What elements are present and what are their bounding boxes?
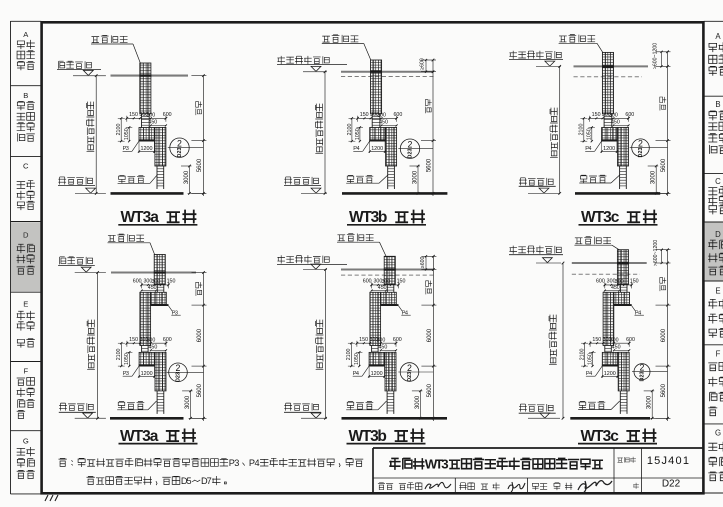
svg-text:5600: 5600: [197, 383, 203, 397]
svg-text:B: B: [715, 100, 720, 109]
svg-text:450: 450: [612, 344, 621, 350]
svg-text:150: 150: [167, 279, 176, 285]
svg-text:300: 300: [146, 113, 155, 119]
svg-text:2100: 2100: [116, 124, 122, 136]
svg-text:D22: D22: [662, 479, 681, 490]
svg-text:450: 450: [148, 119, 157, 125]
svg-text:600: 600: [133, 279, 142, 285]
svg-text:600: 600: [626, 337, 635, 343]
svg-text:E: E: [23, 299, 28, 308]
svg-text:D23: D23: [640, 372, 646, 382]
svg-text:F: F: [23, 367, 28, 376]
svg-text:1200: 1200: [141, 146, 153, 152]
svg-text:6000: 6000: [197, 328, 203, 342]
svg-text:E: E: [715, 286, 720, 295]
svg-text:D: D: [23, 230, 29, 239]
svg-text:B: B: [23, 91, 28, 100]
svg-text:150: 150: [592, 112, 601, 118]
svg-text:2: 2: [176, 363, 181, 373]
svg-text:D23: D23: [638, 148, 644, 158]
svg-text:P3: P3: [229, 458, 240, 468]
svg-text:450: 450: [611, 285, 620, 291]
svg-text:WT3b: WT3b: [349, 428, 387, 445]
svg-text:600: 600: [596, 279, 605, 285]
svg-text:450: 450: [378, 344, 387, 350]
svg-text:450: 450: [378, 285, 387, 291]
svg-text:2: 2: [638, 139, 643, 149]
svg-text:5600: 5600: [427, 158, 433, 172]
svg-text:6000: 6000: [427, 328, 433, 342]
svg-text:150: 150: [630, 279, 639, 285]
svg-text:2: 2: [407, 363, 412, 373]
svg-text:1200: 1200: [604, 371, 616, 377]
svg-text:450: 450: [611, 119, 620, 125]
svg-text:WT3b: WT3b: [349, 209, 387, 226]
svg-text:2100: 2100: [347, 124, 353, 136]
svg-text:D23: D23: [407, 372, 413, 382]
svg-text:600: 600: [393, 337, 402, 343]
svg-text:3000: 3000: [415, 395, 421, 409]
svg-text:3000: 3000: [651, 170, 657, 184]
svg-text:2100: 2100: [579, 348, 585, 360]
svg-text:C: C: [715, 177, 721, 186]
svg-text:150: 150: [592, 337, 601, 343]
svg-text:300: 300: [610, 338, 619, 344]
svg-text:WT3c: WT3c: [581, 209, 620, 226]
svg-text:1200: 1200: [371, 146, 383, 152]
svg-text:2100: 2100: [346, 348, 352, 360]
svg-text:WT3a: WT3a: [120, 428, 159, 445]
svg-text:G: G: [23, 436, 29, 445]
svg-text:15J401: 15J401: [647, 455, 690, 467]
svg-text:600: 600: [625, 112, 634, 118]
svg-text:6000: 6000: [661, 328, 667, 342]
svg-text:1200: 1200: [141, 371, 153, 377]
svg-text:2: 2: [177, 139, 182, 149]
svg-text:3000: 3000: [412, 170, 418, 184]
svg-text:450: 450: [148, 344, 157, 350]
svg-text:WT3c: WT3c: [581, 428, 620, 445]
svg-text:3000: 3000: [185, 395, 191, 409]
svg-text:3000: 3000: [647, 395, 653, 409]
svg-text:300: 300: [146, 338, 155, 344]
svg-text:G: G: [715, 429, 721, 438]
svg-text:≥600: ≥600: [420, 257, 426, 269]
svg-text:D: D: [715, 230, 721, 239]
svg-text:600: 600: [163, 337, 172, 343]
svg-text:≥600: ≥600: [420, 58, 426, 70]
svg-text:150: 150: [360, 112, 369, 118]
svg-text:2: 2: [640, 363, 645, 373]
svg-text:1050: 1050: [124, 353, 130, 365]
svg-text:1050: 1050: [354, 353, 360, 365]
svg-text:D23: D23: [177, 148, 183, 158]
svg-text:150: 150: [397, 279, 406, 285]
svg-text:F: F: [716, 349, 721, 358]
svg-text:D23: D23: [176, 372, 182, 382]
svg-text:1050: 1050: [587, 353, 593, 365]
svg-text:>600~1200: >600~1200: [653, 43, 659, 69]
svg-text:5600: 5600: [427, 383, 433, 397]
svg-text:WT3a: WT3a: [121, 209, 160, 226]
svg-text:300: 300: [377, 113, 386, 119]
svg-text:600: 600: [363, 279, 372, 285]
svg-text:450: 450: [148, 285, 157, 291]
svg-text:1050: 1050: [355, 128, 361, 140]
svg-text:>600~1200: >600~1200: [653, 240, 659, 266]
svg-text:150: 150: [359, 337, 368, 343]
svg-text:300: 300: [376, 338, 385, 344]
svg-text:1200: 1200: [371, 371, 383, 377]
svg-text:5600: 5600: [661, 383, 667, 397]
svg-text:150: 150: [129, 337, 138, 343]
svg-text:2100: 2100: [579, 124, 585, 136]
svg-text:5600: 5600: [197, 158, 203, 172]
svg-text:3000: 3000: [184, 170, 190, 184]
svg-text:2100: 2100: [116, 348, 122, 360]
svg-text:P4: P4: [249, 458, 260, 468]
svg-text:1050: 1050: [587, 128, 593, 140]
svg-text:1050: 1050: [124, 128, 130, 140]
svg-text:D5: D5: [181, 476, 192, 486]
svg-text:450: 450: [379, 119, 388, 125]
svg-text:2: 2: [408, 140, 413, 150]
svg-text:D7: D7: [201, 476, 212, 486]
svg-text:150: 150: [129, 112, 138, 118]
svg-text:WT3: WT3: [425, 457, 449, 472]
svg-text:600: 600: [393, 112, 402, 118]
svg-text:300: 300: [609, 113, 618, 119]
svg-text:C: C: [23, 161, 29, 170]
svg-text:A: A: [715, 32, 721, 41]
svg-text:600: 600: [163, 112, 172, 118]
svg-text:5600: 5600: [661, 158, 667, 172]
svg-text:D23: D23: [408, 149, 414, 159]
svg-text:1200: 1200: [603, 146, 615, 152]
